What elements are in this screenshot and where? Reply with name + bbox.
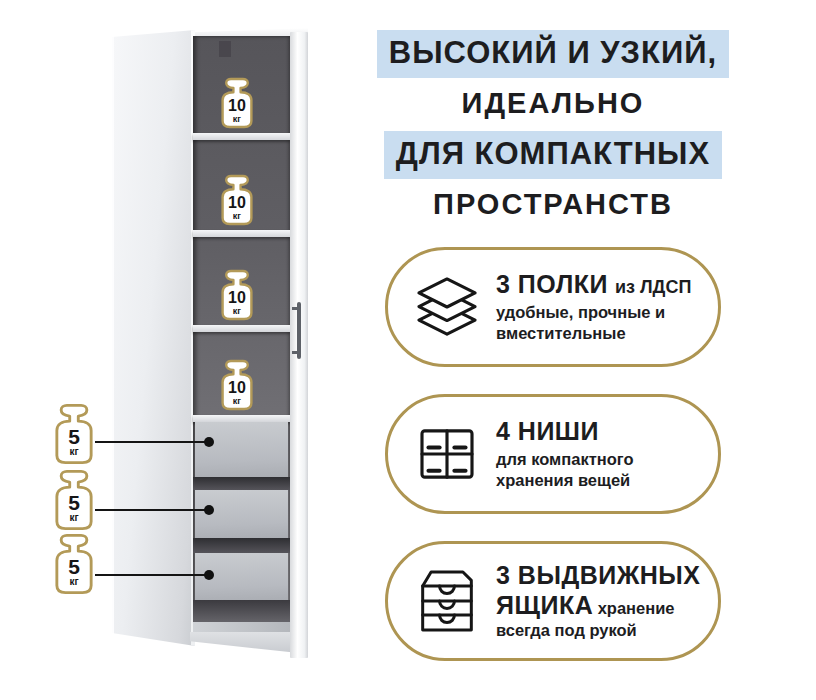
shelf-weight-capacity-badge: 10 кг: [219, 75, 255, 131]
product-infographic: 10 кг 10 кг 10 кг 10 кг: [0, 0, 816, 700]
feature-badge-niches: 4 НИШИ для компактного хранения вещей: [385, 394, 721, 514]
hinge-detail: [219, 41, 231, 57]
feature-description: удобные, прочные и вместительные: [496, 302, 702, 343]
shelf-board: [193, 325, 290, 332]
headline-line-2: ИДЕАЛЬНО: [350, 85, 756, 123]
shelf-weight-capacity-badge: 10 кг: [219, 267, 255, 323]
drawers-chest-icon: [414, 568, 480, 634]
callout-dot: [204, 570, 214, 580]
drawer-gap: [193, 477, 290, 490]
weight-value: 5: [52, 556, 96, 577]
callout-dot: [204, 505, 214, 515]
feature-description: для компактного хранения вещей: [496, 449, 702, 490]
cabinet-interior: 10 кг 10 кг 10 кг 10 кг: [193, 36, 290, 632]
shelf-board: [193, 415, 290, 422]
feature-badge-shelves: 3 ПОЛКИиз ЛДСП удобные, прочные и вмести…: [385, 247, 721, 367]
shelves-layers-icon: [414, 277, 480, 337]
weight-value: 10: [219, 380, 255, 396]
weight-unit: кг: [52, 513, 96, 523]
weight-value: 10: [219, 98, 255, 114]
info-panel: ВЫСОКИЙ И УЗКИЙ, ИДЕАЛЬНО ДЛЯ КОМПАКТНЫХ…: [350, 30, 756, 661]
drawer-front: [195, 422, 288, 479]
weight-unit: кг: [219, 397, 255, 406]
feature-title-suffix: из ЛДСП: [615, 277, 691, 297]
weight-unit: кг: [219, 307, 255, 316]
niches-grid-icon: [414, 429, 480, 479]
headline: ВЫСОКИЙ И УЗКИЙ, ИДЕАЛЬНО ДЛЯ КОМПАКТНЫХ…: [350, 30, 756, 224]
drawer-weight-capacity-badge: 5 кг: [52, 404, 96, 464]
callout-line: [95, 574, 208, 576]
headline-line-1: ВЫСОКИЙ И УЗКИЙ,: [350, 30, 756, 78]
weight-value: 10: [219, 290, 255, 306]
feature-title: 3 ПОЛКИ: [496, 270, 608, 298]
weight-unit: кг: [219, 115, 255, 124]
drawer-gap: [193, 538, 290, 553]
drawer-weight-capacity-badge: 5 кг: [52, 470, 96, 530]
wardrobe-illustration: 10 кг 10 кг 10 кг 10 кг: [112, 28, 308, 652]
door-handle: [297, 302, 301, 359]
weight-value: 5: [52, 426, 96, 447]
shelf-weight-capacity-badge: 10 кг: [219, 357, 255, 413]
drawer-front: [195, 490, 288, 540]
shelf-weight-capacity-badge: 10 кг: [219, 172, 255, 228]
shelf-board: [193, 230, 290, 237]
drawer-weight-capacity-badge: 5 кг: [52, 534, 96, 594]
weight-unit: кг: [219, 212, 255, 221]
callout-dot: [204, 437, 214, 447]
weight-value: 5: [52, 492, 96, 513]
weight-unit: кг: [52, 577, 96, 587]
shelf-board: [193, 133, 290, 140]
feature-title: 4 НИШИ: [496, 417, 599, 445]
callout-line: [95, 441, 208, 443]
feature-badge-drawers: 3 ВЫДВИЖНЫХ ЯЩИКА хранение всегда под ру…: [385, 541, 721, 661]
headline-line-4: ПРОСТРАНСТВ: [350, 186, 756, 224]
feature-badges: 3 ПОЛКИиз ЛДСП удобные, прочные и вмести…: [350, 247, 756, 661]
weight-unit: кг: [52, 447, 96, 457]
callout-line: [95, 509, 208, 511]
weight-value: 10: [219, 195, 255, 211]
headline-line-3: ДЛЯ КОМПАКТНЫХ: [350, 131, 756, 179]
cabinet-open-door-panel: [112, 30, 195, 646]
cabinet-door: [290, 32, 308, 658]
